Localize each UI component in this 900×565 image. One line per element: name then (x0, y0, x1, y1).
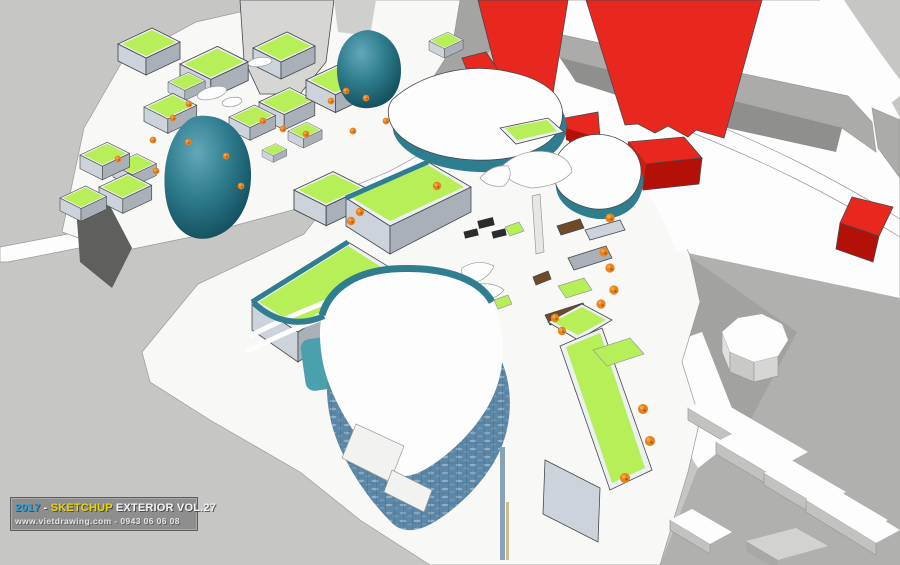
watermark-box: 2017 - SKETCHUP EXTERIOR VOL.27 www.viet… (10, 497, 198, 531)
octagon-tower (722, 314, 788, 382)
watermark-contact: www.vietdrawing.com - 0943 06 06 08 (15, 516, 193, 527)
watermark-website: www.vietdrawing.com (15, 516, 112, 526)
watermark-title: 2017 - SKETCHUP EXTERIOR VOL.27 (15, 502, 193, 516)
watermark-brand: SKETCHUP (51, 502, 113, 514)
watermark-phone: 0943 06 06 08 (120, 516, 180, 526)
watermark-year: 2017 (15, 502, 40, 514)
watermark-series: EXTERIOR VOL.27 (113, 502, 216, 514)
scene-3d-render (0, 0, 900, 565)
render-viewport: 2017 - SKETCHUP EXTERIOR VOL.27 www.viet… (0, 0, 900, 565)
